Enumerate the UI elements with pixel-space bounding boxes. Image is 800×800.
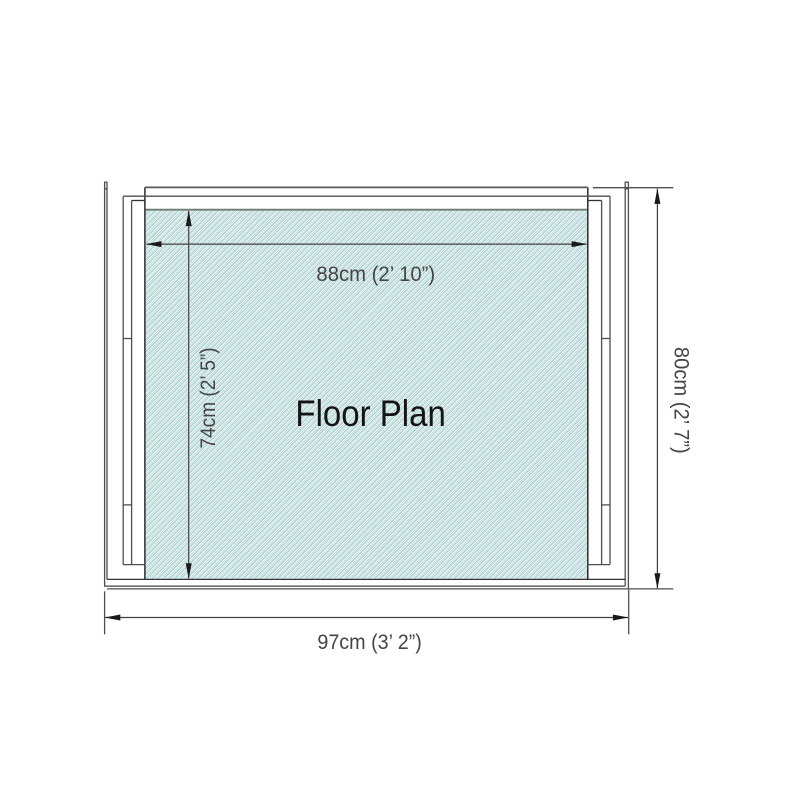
svg-text:97cm (3’ 2”): 97cm (3’ 2”) [317, 632, 421, 655]
svg-text:74cm (2’ 5”): 74cm (2’ 5”) [197, 347, 220, 448]
svg-text:Floor Plan: Floor Plan [295, 393, 445, 434]
svg-text:88cm (2’ 10”): 88cm (2’ 10”) [316, 263, 435, 286]
svg-text:80cm (2’ 7”): 80cm (2’ 7”) [669, 347, 692, 454]
